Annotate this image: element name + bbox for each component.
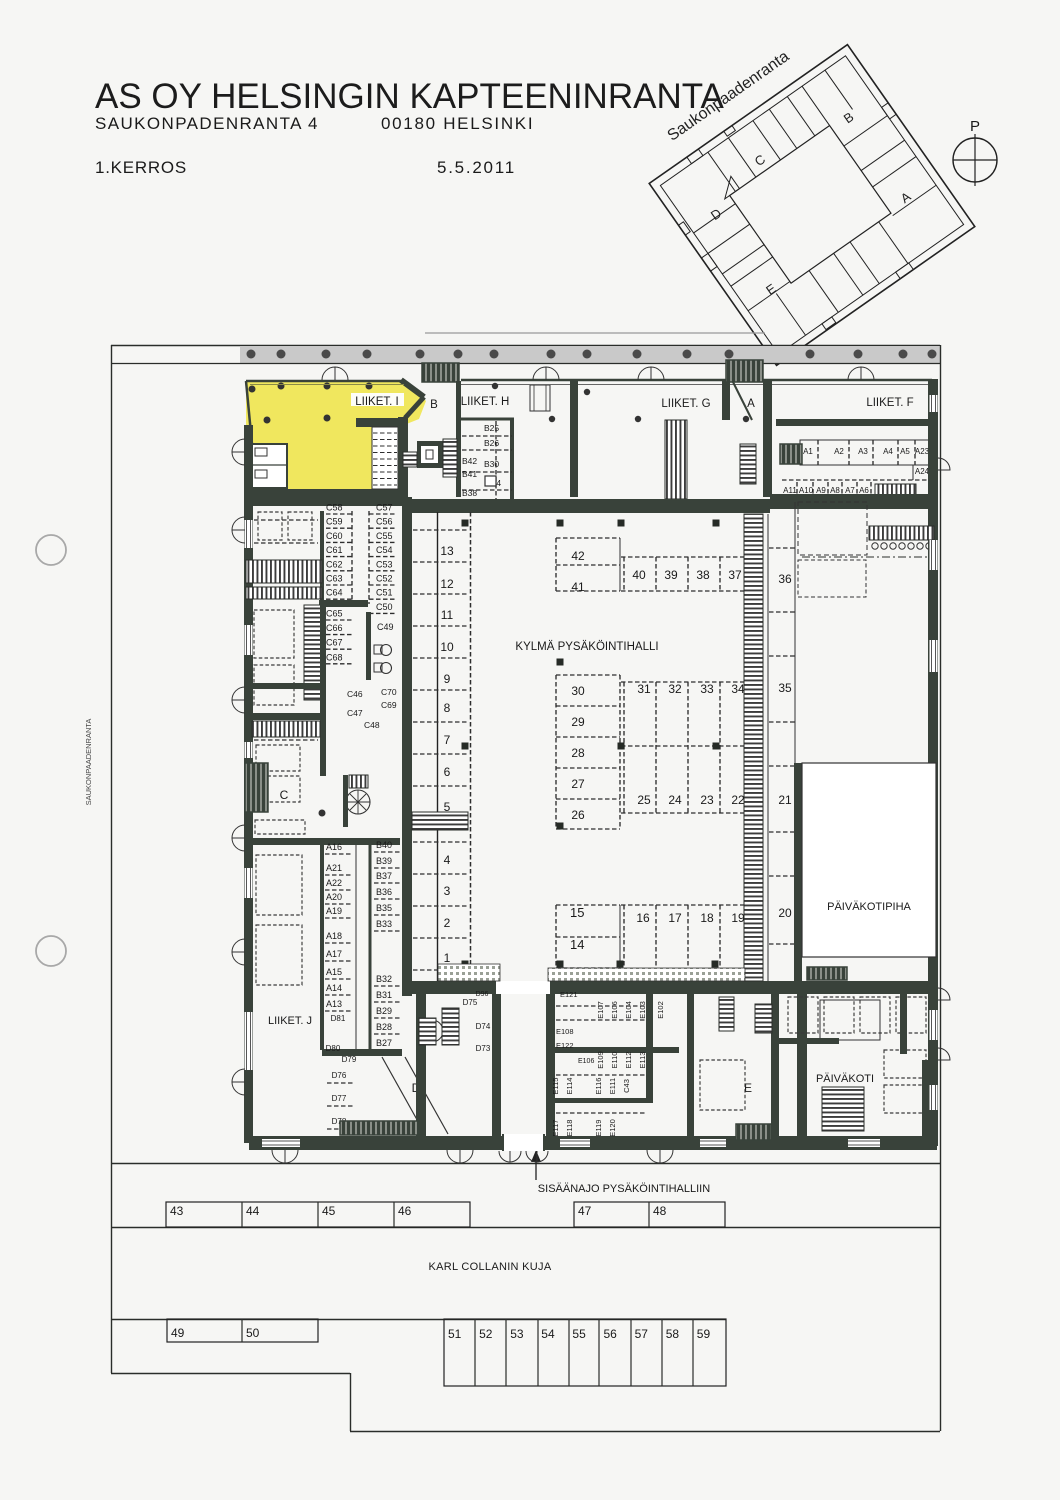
svg-text:33: 33 [700,682,714,696]
svg-text:C: C [280,788,289,802]
svg-text:E115: E115 [551,1078,560,1095]
svg-text:AS OY HELSINGIN KAPTEENINRANTA: AS OY HELSINGIN KAPTEENINRANTA [95,77,725,116]
svg-text:E122: E122 [556,1041,574,1050]
svg-text:A11: A11 [783,486,797,495]
svg-text:A20: A20 [326,892,342,902]
svg-text:B37: B37 [376,871,392,881]
svg-text:A3: A3 [858,447,868,456]
svg-text:E116: E116 [594,1078,603,1095]
svg-text:51: 51 [448,1327,462,1341]
svg-text:E117: E117 [551,1120,560,1137]
svg-text:C48: C48 [364,720,380,730]
svg-text:B39: B39 [376,856,392,866]
svg-text:C60: C60 [326,531,343,541]
svg-text:SISÄÄNAJO PYSÄKÖINTIHALLIIN: SISÄÄNAJO PYSÄKÖINTIHALLIIN [538,1183,710,1195]
svg-text:53: 53 [510,1327,524,1341]
svg-text:C54: C54 [376,545,393,555]
svg-text:A19: A19 [326,906,342,916]
svg-text:C57: C57 [376,503,393,513]
svg-text:55: 55 [572,1327,586,1341]
svg-text:B33: B33 [376,919,392,929]
svg-text:C65: C65 [326,609,343,619]
svg-text:A17: A17 [326,949,342,959]
svg-text:25: 25 [637,793,651,807]
svg-text:14: 14 [570,937,584,952]
svg-text:34: 34 [731,682,745,696]
svg-text:26: 26 [571,808,585,822]
svg-text:57: 57 [635,1327,649,1341]
svg-text:E112: E112 [624,1052,633,1069]
svg-text:C67: C67 [326,638,343,648]
svg-text:16: 16 [636,911,650,925]
svg-text:28: 28 [571,746,585,760]
svg-text:10: 10 [440,640,454,654]
svg-text:1.KERROS: 1.KERROS [95,158,187,177]
svg-text:17: 17 [668,911,682,925]
svg-text:3: 3 [444,884,451,898]
svg-text:39: 39 [664,568,678,582]
svg-text:C52: C52 [376,574,393,584]
svg-text:40: 40 [632,568,646,582]
svg-text:B32: B32 [376,974,392,984]
svg-text:24: 24 [668,793,682,807]
svg-text:45: 45 [322,1204,336,1218]
svg-text:E106: E106 [578,1058,594,1065]
svg-text:22: 22 [731,793,745,807]
svg-text:A: A [747,398,755,410]
svg-text:41: 41 [571,580,585,594]
svg-text:A7: A7 [845,486,855,495]
svg-text:E111: E111 [608,1078,617,1094]
svg-text:54: 54 [541,1327,555,1341]
svg-text:D77: D77 [332,1094,347,1103]
svg-text:E119: E119 [594,1120,603,1137]
svg-text:E120: E120 [608,1119,617,1137]
svg-text:35: 35 [778,681,792,695]
svg-text:38: 38 [696,568,710,582]
svg-text:48: 48 [653,1204,667,1218]
svg-text:32: 32 [668,682,682,696]
svg-text:C64: C64 [326,588,343,598]
svg-text:E108: E108 [556,1027,574,1036]
svg-text:B30: B30 [484,459,499,469]
svg-text:A2: A2 [834,447,844,456]
svg-text:E106: E106 [610,1001,619,1019]
svg-text:C49: C49 [377,622,394,632]
svg-text:E109: E109 [596,1051,605,1069]
svg-text:36: 36 [778,572,792,586]
svg-text:13: 13 [440,544,454,558]
svg-text:E: E [744,1081,752,1095]
svg-text:50: 50 [246,1326,260,1340]
svg-text:27: 27 [571,777,585,791]
svg-text:C58: C58 [326,503,343,513]
svg-text:A18: A18 [326,931,342,941]
svg-text:D80: D80 [326,1044,341,1053]
svg-text:A16: A16 [326,842,342,852]
svg-text:C66: C66 [326,623,343,633]
svg-text:D81: D81 [331,1014,346,1023]
svg-text:PÄIVÄKOTI: PÄIVÄKOTI [816,1073,874,1085]
svg-text:59: 59 [697,1327,711,1341]
svg-text:LIIKET. F: LIIKET. F [866,397,913,409]
svg-text:D76: D76 [332,1071,347,1080]
svg-text:LIIKET. H: LIIKET. H [461,396,510,408]
svg-text:6: 6 [444,765,451,779]
svg-text:D96: D96 [476,991,489,998]
svg-text:SAUKONPADENRANTA 4: SAUKONPADENRANTA 4 [95,114,319,133]
svg-text:B31: B31 [376,990,392,1000]
svg-text:29: 29 [571,715,585,729]
svg-text:C59: C59 [326,517,343,527]
svg-text:A1: A1 [803,447,813,456]
svg-text:B38: B38 [462,488,477,498]
svg-text:B41: B41 [462,469,477,479]
svg-text:C68: C68 [326,652,343,662]
svg-text:2: 2 [444,916,451,930]
svg-text:C50: C50 [376,602,393,612]
svg-text:B28: B28 [376,1022,392,1032]
svg-text:E118: E118 [565,1120,574,1137]
svg-text:E110: E110 [610,1052,619,1069]
svg-text:A10: A10 [799,486,814,495]
svg-text:A9: A9 [816,486,826,495]
svg-text:43: 43 [170,1204,184,1218]
svg-text:E102: E102 [656,1001,665,1019]
svg-text:LIIKET. G: LIIKET. G [661,398,710,410]
svg-text:KARL COLLANIN KUJA: KARL COLLANIN KUJA [429,1261,552,1273]
svg-text:C63: C63 [326,574,343,584]
svg-text:52: 52 [479,1327,493,1341]
svg-text:44: 44 [246,1204,260,1218]
svg-text:B42: B42 [462,456,477,466]
svg-text:C69: C69 [381,700,397,710]
svg-text:B29: B29 [376,1006,392,1016]
svg-text:KYLMÄ PYSÄKÖINTIHALLI: KYLMÄ PYSÄKÖINTIHALLI [515,641,658,653]
svg-text:42: 42 [571,549,585,563]
svg-text:C56: C56 [376,517,393,527]
svg-text:C53: C53 [376,559,393,569]
svg-text:7: 7 [444,733,451,747]
svg-text:LIIKET. I: LIIKET. I [355,396,398,408]
svg-text:A13: A13 [326,999,342,1009]
svg-text:D73: D73 [476,1044,491,1053]
svg-text:C47: C47 [347,708,363,718]
svg-text:A4: A4 [883,447,893,456]
svg-text:19: 19 [731,911,745,925]
svg-text:B36: B36 [376,887,392,897]
svg-text:37: 37 [728,568,742,582]
svg-text:58: 58 [666,1327,680,1341]
svg-text:A23: A23 [915,447,930,456]
svg-text:D74: D74 [476,1022,491,1031]
svg-text:D75: D75 [463,998,478,1007]
svg-text:C51: C51 [376,588,393,598]
svg-text:12: 12 [440,577,454,591]
svg-text:15: 15 [570,905,584,920]
svg-text:23: 23 [700,793,714,807]
svg-text:C55: C55 [376,531,393,541]
svg-text:E104: E104 [624,1001,633,1019]
svg-text:B35: B35 [376,903,392,913]
svg-text:B25: B25 [484,423,499,433]
svg-text:E103: E103 [638,1001,647,1019]
svg-text:D79: D79 [342,1055,357,1064]
svg-text:56: 56 [604,1327,618,1341]
svg-text:00180 HELSINKI: 00180 HELSINKI [381,114,534,133]
svg-text:4: 4 [444,853,451,867]
svg-text:31: 31 [637,682,651,696]
svg-text:20: 20 [778,906,792,920]
svg-text:A22: A22 [326,878,342,888]
svg-text:LIIKET. J: LIIKET. J [268,1015,312,1027]
svg-text:46: 46 [398,1204,412,1218]
svg-text:A15: A15 [326,967,342,977]
svg-text:A21: A21 [326,863,342,873]
svg-text:47: 47 [578,1204,592,1218]
svg-text:E114: E114 [565,1078,574,1095]
svg-text:11: 11 [441,608,454,622]
svg-text:18: 18 [700,911,714,925]
svg-text:A5: A5 [900,447,910,456]
svg-text:E107: E107 [596,1001,605,1019]
svg-text:B40: B40 [376,840,392,850]
svg-text:E113: E113 [638,1052,647,1069]
svg-text:A24: A24 [915,467,930,476]
svg-text:B27: B27 [376,1038,392,1048]
svg-text:C70: C70 [381,687,397,697]
svg-text:30: 30 [571,684,585,698]
svg-text:8: 8 [444,701,451,715]
svg-text:5.5.2011: 5.5.2011 [437,158,516,177]
svg-text:PÄIVÄKOTIPIHA: PÄIVÄKOTIPIHA [827,901,911,913]
svg-text:B: B [430,399,438,411]
svg-text:21: 21 [778,793,792,807]
svg-text:P: P [970,118,980,135]
svg-text:C46: C46 [347,689,363,699]
svg-text:1: 1 [444,951,451,965]
svg-text:A8: A8 [830,486,840,495]
svg-text:B26: B26 [484,438,499,448]
svg-text:SAUKONPAADENRANTA: SAUKONPAADENRANTA [84,719,93,806]
svg-text:C61: C61 [326,545,343,555]
svg-text:A14: A14 [326,983,342,993]
svg-text:49: 49 [171,1326,185,1340]
svg-text:C43: C43 [622,1079,631,1093]
svg-text:E121: E121 [560,990,578,999]
svg-text:A6: A6 [859,486,869,495]
svg-text:9: 9 [444,672,451,686]
svg-text:C62: C62 [326,559,343,569]
